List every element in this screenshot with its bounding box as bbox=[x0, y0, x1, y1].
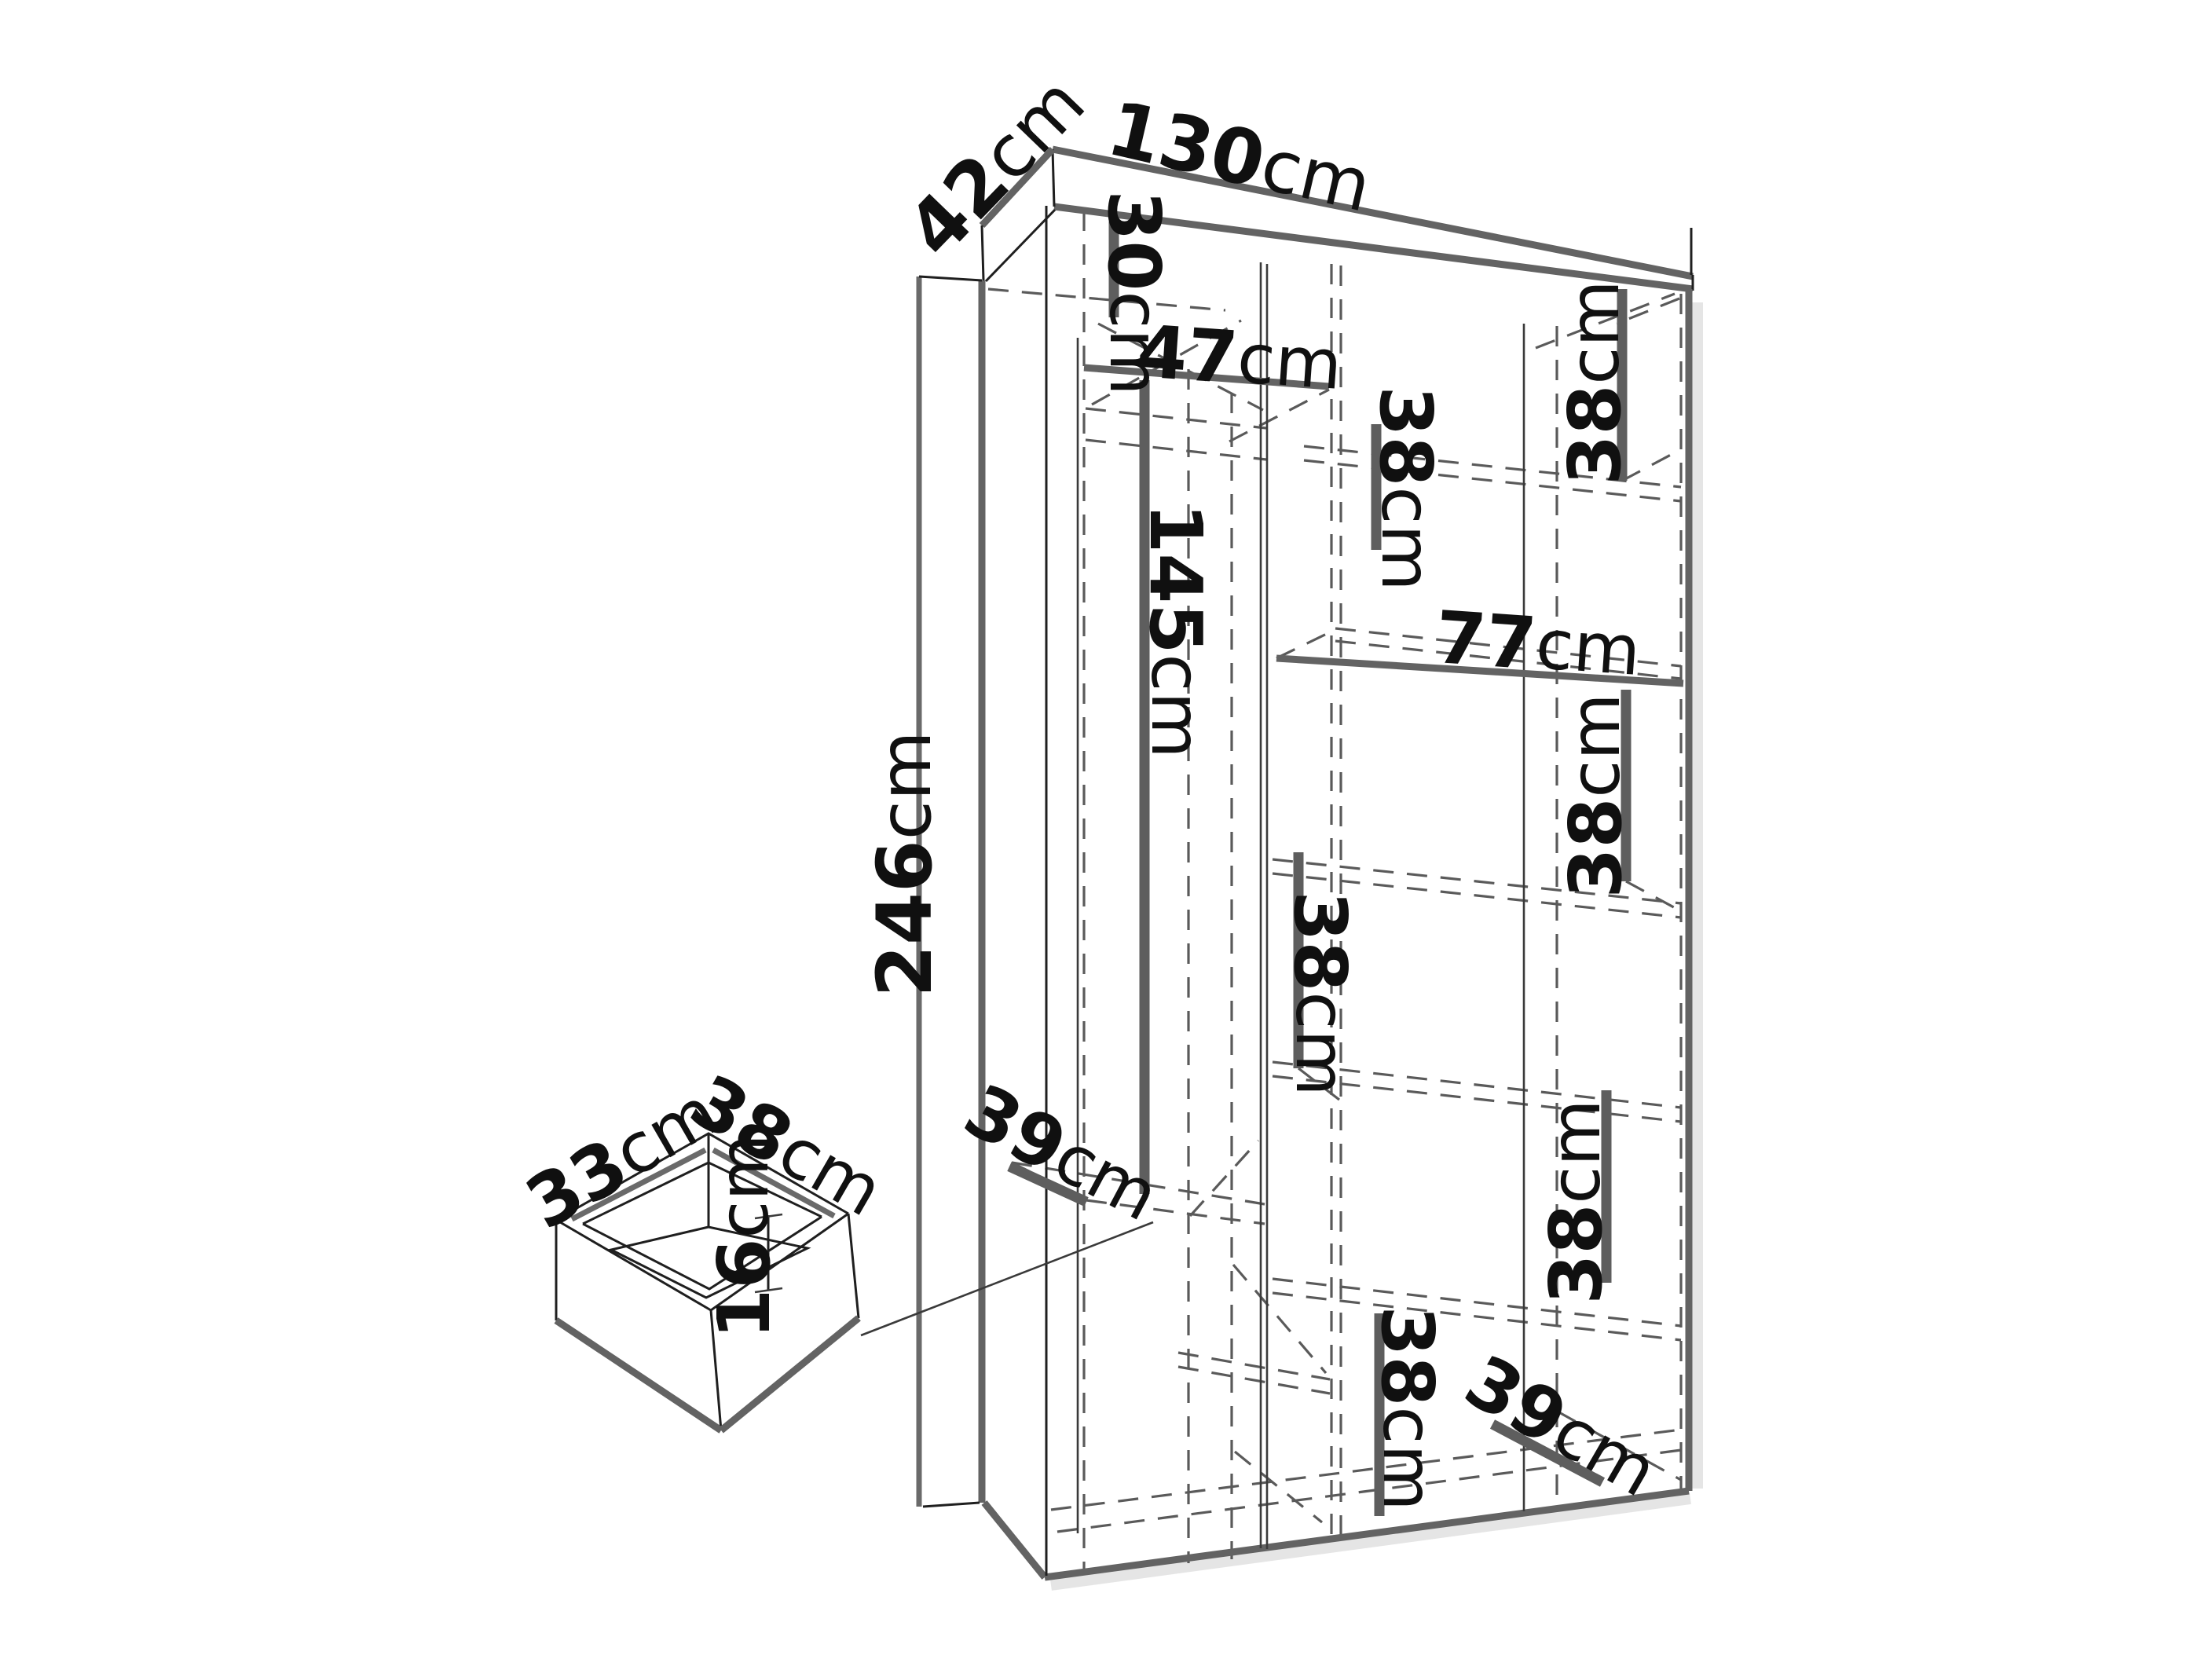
dim-label-38-e: 38cm bbox=[1534, 1099, 1618, 1304]
dim-label-drawer-16: 16cm bbox=[702, 1133, 786, 1339]
dim-label-38-c: 38cm bbox=[1554, 693, 1638, 898]
dim-label-depth-42: 42cm bbox=[890, 59, 1102, 274]
diagram-page: 130cm 42cm 246cm 30cm 47cm 145cm 77cm 38… bbox=[0, 0, 2212, 1659]
dim-label-47: 47cm bbox=[1134, 309, 1345, 408]
leader-line bbox=[861, 1222, 1153, 1335]
dim-label-39-right: 39cm bbox=[1452, 1339, 1672, 1514]
dim-label-height-246: 246cm bbox=[861, 731, 949, 997]
dim-label-38-d: 38cm bbox=[1279, 891, 1363, 1096]
dimension-strokes bbox=[1009, 222, 1626, 1516]
dim-label-77: 77cm bbox=[1433, 595, 1643, 694]
dim-label-38-a: 38cm bbox=[1553, 280, 1637, 485]
dim-label-145: 145cm bbox=[1134, 503, 1218, 758]
dim-label-38-f: 38cm bbox=[1366, 1306, 1450, 1511]
wardrobe-dimension-diagram: 130cm 42cm 246cm 30cm 47cm 145cm 77cm 38… bbox=[0, 0, 2212, 1659]
dim-label-38-b: 38cm bbox=[1364, 386, 1448, 591]
